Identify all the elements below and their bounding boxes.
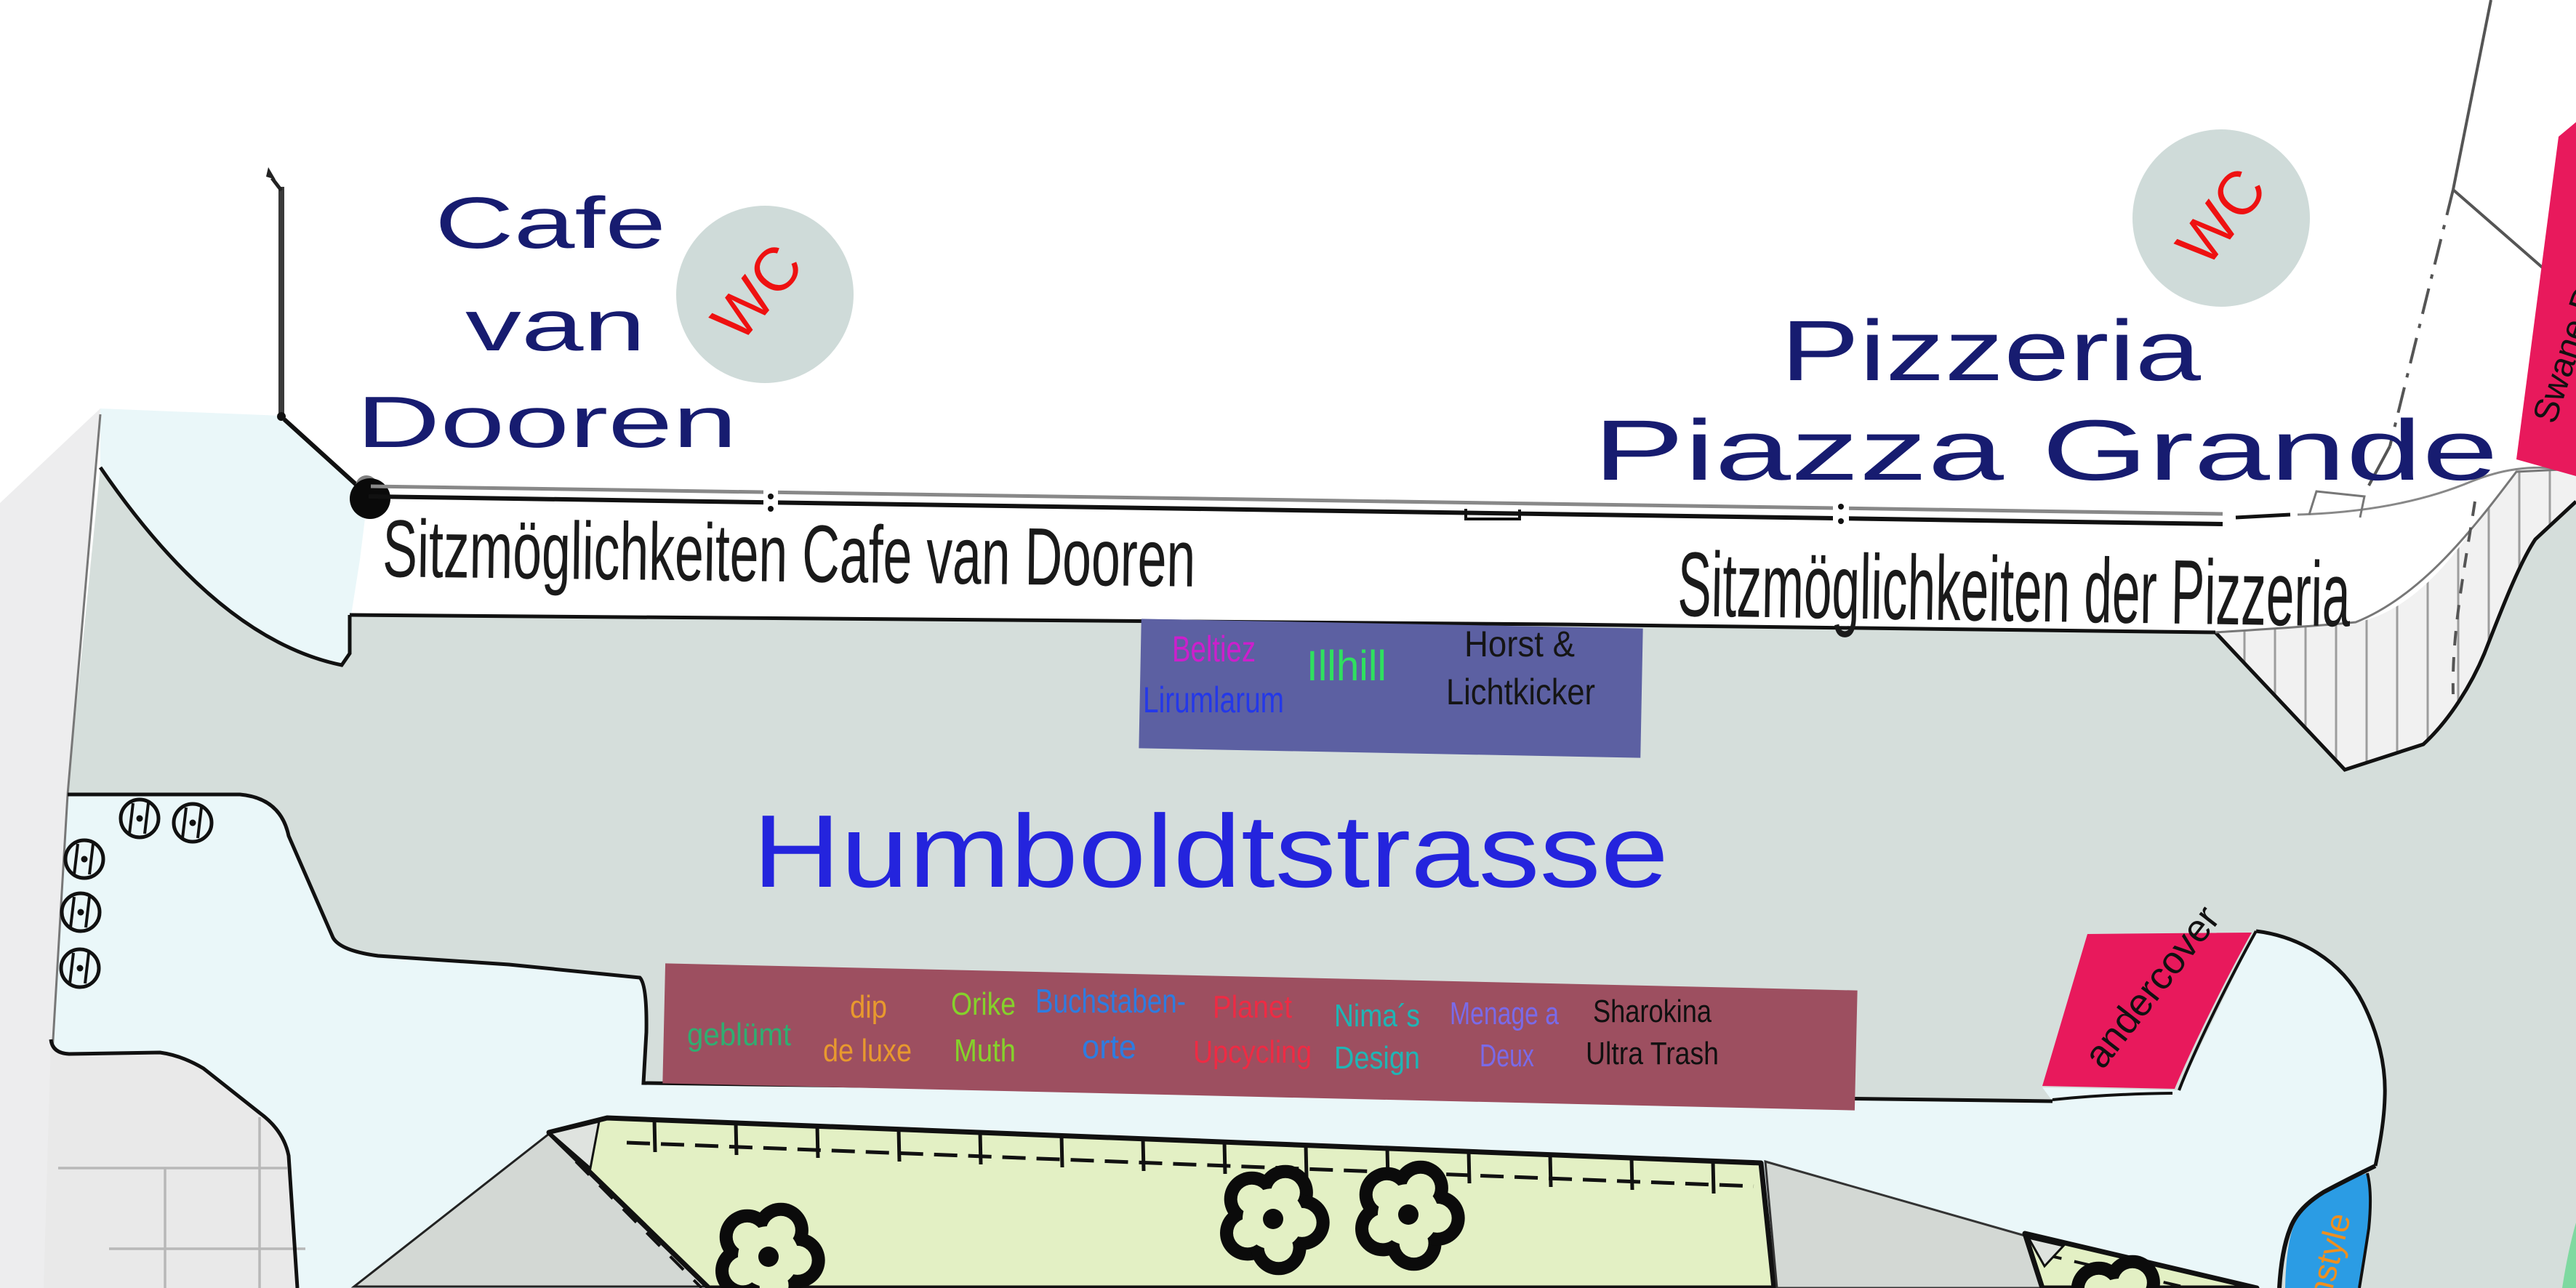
- svg-text:Planet: Planet: [1213, 989, 1292, 1025]
- svg-text:Piazza Grande: Piazza Grande: [1593, 403, 2498, 499]
- svg-text:Beltiez: Beltiez: [1172, 629, 1256, 669]
- svg-text:Upcycling: Upcycling: [1193, 1034, 1312, 1070]
- svg-text:Sitzmöglichkeiten der Pizzeria: Sitzmöglichkeiten der Pizzeria: [1677, 533, 2352, 646]
- svg-text:Lichtkicker: Lichtkicker: [1446, 672, 1595, 712]
- svg-text:Deux: Deux: [1480, 1038, 1534, 1074]
- svg-text:Nima´s: Nima´s: [1334, 998, 1420, 1034]
- svg-text:Illhill: Illhill: [1307, 643, 1387, 690]
- svg-text:orte: orte: [1082, 1028, 1136, 1066]
- svg-text:Pizzeria: Pizzeria: [1781, 303, 2202, 399]
- svg-text:Dooren: Dooren: [356, 382, 737, 463]
- svg-text:Horst &: Horst &: [1464, 624, 1575, 664]
- svg-text:van: van: [465, 285, 646, 366]
- svg-text:Cafe: Cafe: [435, 182, 666, 264]
- svg-text:de luxe: de luxe: [823, 1033, 912, 1068]
- svg-text:Sharokina: Sharokina: [1593, 994, 1712, 1029]
- svg-text:Muth: Muth: [954, 1033, 1016, 1068]
- svg-text:Menage a: Menage a: [1450, 996, 1559, 1031]
- svg-text:Buchstaben-: Buchstaben-: [1035, 982, 1186, 1020]
- svg-text:geblümt: geblümt: [687, 1017, 791, 1052]
- svg-text:Design: Design: [1334, 1040, 1420, 1076]
- svg-text:dip: dip: [850, 989, 887, 1025]
- svg-text:Ultra Trash: Ultra Trash: [1586, 1036, 1719, 1071]
- svg-text:Lirumlarum: Lirumlarum: [1143, 680, 1284, 720]
- svg-text:Sitzmöglichkeiten Cafe van Doo: Sitzmöglichkeiten Cafe van Dooren: [382, 503, 1196, 604]
- svg-text:Orike: Orike: [951, 986, 1016, 1022]
- svg-text:Humboldtstrasse: Humboldtstrasse: [753, 794, 1669, 909]
